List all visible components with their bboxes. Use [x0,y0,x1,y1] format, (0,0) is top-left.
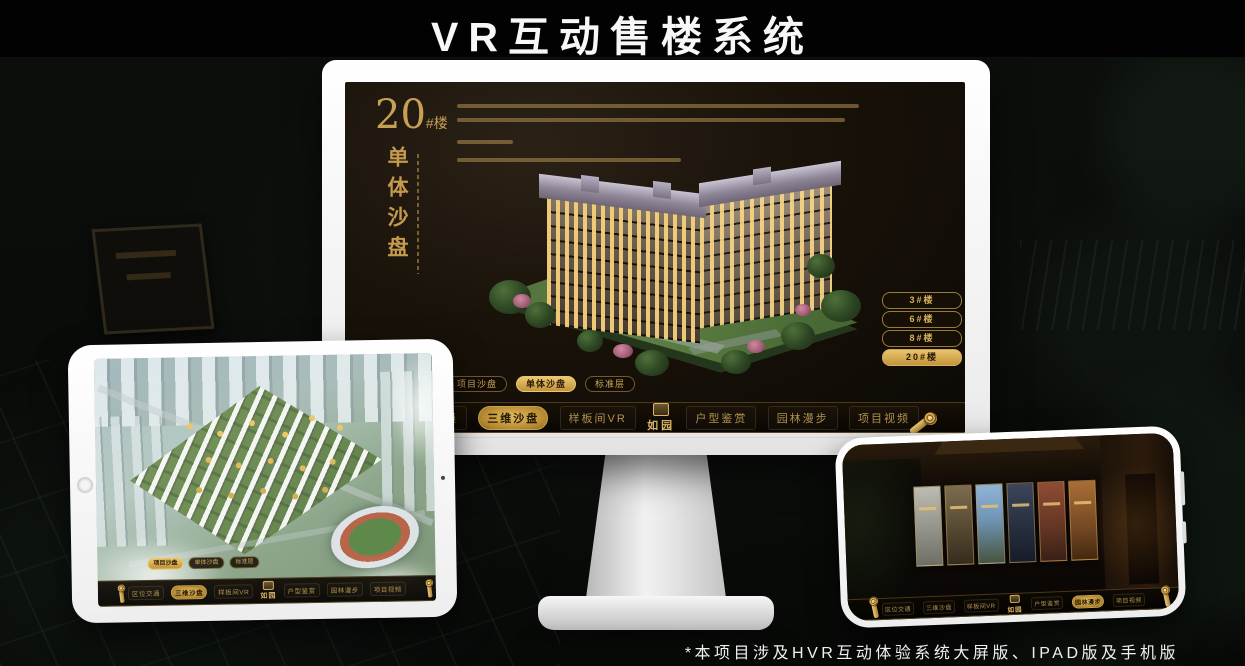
scene-card[interactable] [944,484,974,565]
tree [807,254,835,278]
brand-name: 如园 [260,591,276,601]
title-band: VR互动售楼系统 [0,0,1245,58]
building-number: 20 [375,92,426,138]
footnote: *本项目涉及HVR互动体验系统大屏版、IPAD版及手机版 [685,639,1179,663]
nav-item-showroom-vr[interactable]: 样板间VR [560,406,636,430]
brand-logo: 如园 [647,403,675,433]
tree [635,350,669,376]
sand-table-tabs: 项目沙盘 单体沙盘 标准层 [447,376,635,392]
scene-card[interactable] [1006,482,1036,563]
nav-item-showroom-vr[interactable]: 样板间VR [963,598,998,612]
seal-icon [653,403,669,416]
roof-dormer [753,167,771,186]
tab-single-sandtable[interactable]: 单体沙盘 [516,376,576,392]
nav-item-garden-walk[interactable]: 园林漫步 [1072,594,1104,608]
roof-dormer [581,175,599,193]
description-line [457,140,513,144]
promo-page: VR互动售楼系统 20#楼 单体沙盘 [0,0,1245,666]
background-road-texture [1020,240,1245,330]
tab-project-sandtable[interactable]: 项目沙盘 [147,557,183,570]
tab-project-sandtable[interactable]: 项目沙盘 [447,376,507,392]
plant-silhouette [842,458,926,611]
cloud-haze [389,353,436,464]
floor-button-8[interactable]: 8#楼 [882,330,962,347]
nav-item-unit-plans[interactable]: 户型鉴赏 [283,583,319,598]
ipad-screen: 项目沙盘 单体沙盘 标准层 区位交通 三维沙盘 样板间VR 如园 户型鉴赏 园林… [94,353,436,607]
tree [821,290,861,322]
brand-name: 如园 [647,417,675,433]
volume-button[interactable] [1182,521,1187,543]
flowering-shrub [795,304,811,316]
brand-logo: 如园 [1007,594,1023,614]
phone-device: 区位交通 三维沙盘 样板间VR 如园 户型鉴赏 园林漫步 项目视频 [834,425,1186,628]
scene-card[interactable] [1068,480,1098,561]
nav-item-unit-plans[interactable]: 户型鉴赏 [1031,596,1063,610]
scroll-icon[interactable] [905,402,939,428]
floor-button-3[interactable]: 3#楼 [882,292,962,309]
monitor-stand-neck [586,452,726,598]
phone-screen: 区位交通 三维沙盘 样板间VR 如园 户型鉴赏 园林漫步 项目视频 [842,433,1180,622]
tab-standard-floor[interactable]: 标准层 [585,376,635,392]
nav-item-project-video[interactable]: 项目视频 [1113,592,1145,606]
scene-card[interactable] [913,486,943,567]
floor-button-6[interactable]: 6#楼 [882,311,962,328]
seal-icon [263,581,274,590]
building-number-badges [187,423,193,429]
building-3d-model[interactable] [485,162,875,380]
scene-card[interactable] [975,483,1005,564]
tree [525,302,555,328]
camera-icon [441,476,445,480]
tree [577,330,603,352]
building-number-heading: 20#楼 [375,94,448,144]
building-number-suffix: #楼 [426,115,448,131]
nav-item-garden-walk[interactable]: 园林漫步 [768,406,838,430]
description-line [457,118,845,122]
ipad-nav-bar: 区位交通 三维沙盘 样板间VR 如园 户型鉴赏 园林漫步 项目视频 [98,575,436,607]
nav-item-project-video[interactable]: 项目视频 [370,582,406,597]
nav-item-garden-walk[interactable]: 园林漫步 [327,582,363,597]
tab-single-sandtable[interactable]: 单体沙盘 [188,557,224,570]
floor-button-20[interactable]: 20#楼 [882,349,962,366]
flowering-shrub [613,344,633,358]
seal-icon [1010,594,1020,602]
scene-card[interactable] [1037,481,1067,562]
nav-item-3d-sandtable[interactable]: 三维沙盘 [923,600,955,614]
flowering-shrub [747,340,765,353]
flowering-shrub [513,294,531,308]
nav-item-location[interactable]: 区位交通 [882,601,914,615]
page-title: VR互动售楼系统 [0,3,1245,63]
tree [781,322,815,350]
nav-item-unit-plans[interactable]: 户型鉴赏 [686,406,756,430]
brand-logo: 如园 [260,581,276,601]
roof-dormer [653,181,671,199]
nav-item-showroom-vr[interactable]: 样板间VR [214,584,253,599]
ipad-sand-table-tabs: 项目沙盘 单体沙盘 标准层 [147,556,259,570]
nav-item-3d-sandtable[interactable]: 三维沙盘 [171,585,207,600]
monitor-stand-base [538,596,774,630]
nav-item-3d-sandtable[interactable]: 三维沙盘 [478,406,548,430]
ipad-device: 项目沙盘 单体沙盘 标准层 区位交通 三维沙盘 样板间VR 如园 户型鉴赏 园林… [68,339,458,624]
description-line [457,104,859,108]
brand-name: 如园 [1007,603,1022,614]
subtitle-caption-bar [417,154,419,274]
tree [721,350,751,374]
nav-item-location[interactable]: 区位交通 [128,586,164,601]
building-facade-left [547,193,700,344]
sand-table-subtitle: 单体沙盘 [381,146,411,311]
tab-standard-floor[interactable]: 标准层 [229,556,259,569]
background-framed-plaque [91,224,214,335]
home-button[interactable] [77,477,93,493]
